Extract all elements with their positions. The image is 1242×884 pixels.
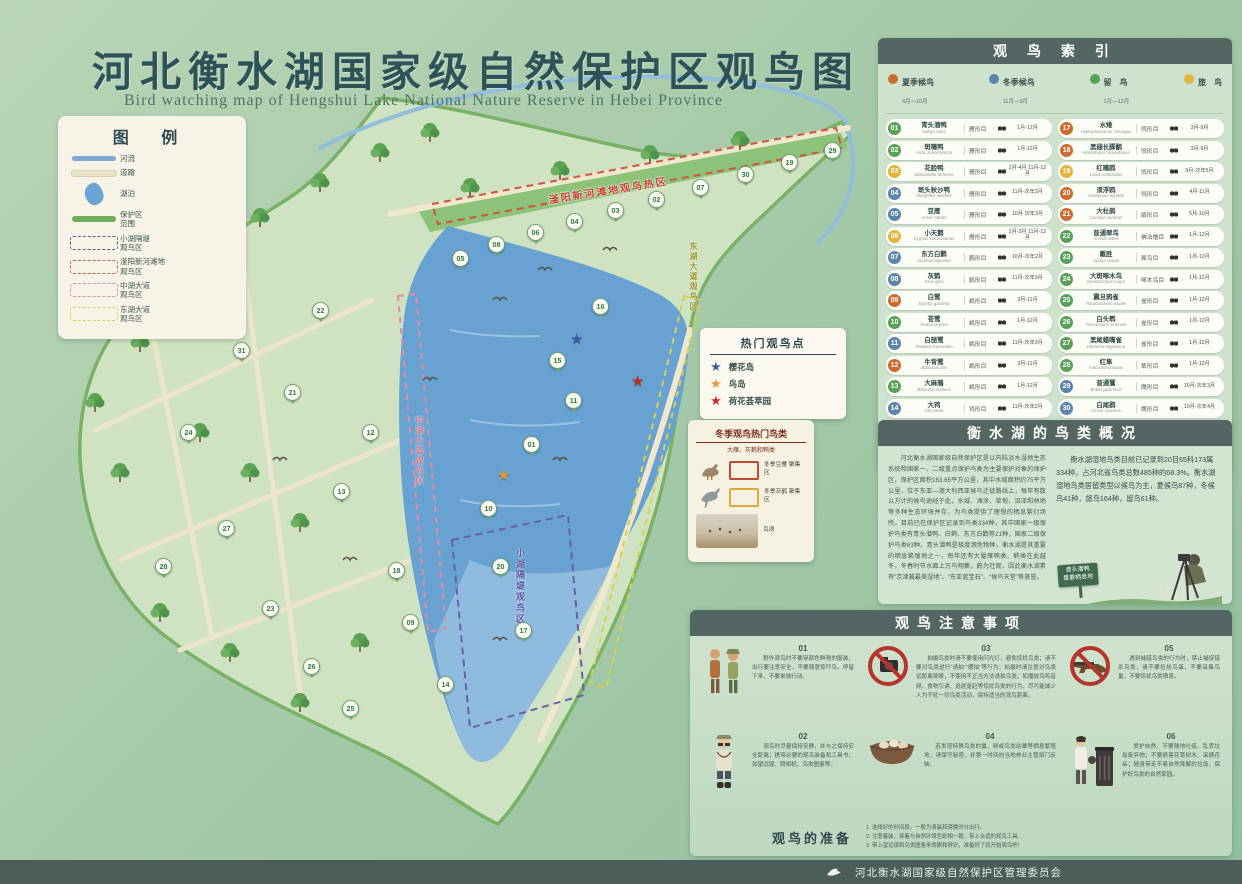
bird-months: 4月-11月 bbox=[1179, 190, 1220, 196]
map-marker: 05 bbox=[452, 250, 469, 267]
bird-row: 29 普通鵟 Buteo japonicus 鹰形目 10月-次年3月 bbox=[1058, 377, 1224, 396]
season-label: 冬季候鸟 bbox=[1003, 78, 1035, 87]
legend-label: 滏阳新河滩地 观鸟区 bbox=[120, 257, 165, 276]
map-marker: 22 bbox=[312, 302, 329, 319]
bird-row: 25 震旦鸦雀 Paradoxornis heudei 雀形目 1月-12月 bbox=[1058, 291, 1224, 310]
bird-number-badge: 07 bbox=[888, 251, 901, 264]
legend-panel: 图 例 河流 道路 湖泊 保护 bbox=[58, 116, 246, 339]
bird-order: 佛法僧目 bbox=[1136, 232, 1169, 241]
binoculars-icon bbox=[997, 190, 1007, 197]
legend-row: 河流 bbox=[68, 154, 236, 163]
bird-order: 雁形目 bbox=[964, 210, 997, 219]
binoculars-icon bbox=[1169, 190, 1179, 197]
bird-number-badge: 08 bbox=[888, 273, 901, 286]
bird-order: 鹈形目 bbox=[964, 296, 997, 305]
bird-name-latin: Mergellus albellus bbox=[904, 194, 964, 198]
bird-row: 24 大斑啄木鸟 Dendrocopos major 啄木鸟目 1月-12月 bbox=[1058, 270, 1224, 289]
bird-number-badge: 22 bbox=[1060, 230, 1073, 243]
map-marker: 03 bbox=[607, 202, 624, 219]
poster: 滏阳新河滩地观鸟热区 小湖隔堤观鸟区 中湖大道观鸟区 东湖大道观鸟区 ★★★ 0… bbox=[0, 0, 1242, 884]
bird-row: 12 牛背鹭 Bubulcus ibis 鹈形目 3月-11月 bbox=[886, 356, 1052, 375]
bird-name-latin: Anas zonorhyncha bbox=[904, 151, 964, 155]
page-title: 河北衡水湖国家级自然保护区观鸟图 bbox=[92, 38, 860, 98]
bird-order: 雁形目 bbox=[964, 167, 997, 176]
map-label-zhonghu: 中湖大道观鸟区 bbox=[414, 416, 425, 486]
binoculars-icon bbox=[997, 362, 1007, 369]
footer-org: 河北衡水湖国家级自然保护区管理委员会 bbox=[855, 865, 1062, 880]
bird-number-badge: 14 bbox=[888, 402, 901, 415]
winter-row-crane: 冬季灰鹤 聚集区 bbox=[696, 486, 806, 508]
binoculars-icon bbox=[997, 319, 1007, 326]
map-marker: 02 bbox=[648, 191, 665, 208]
note-05: 05 遇到捕猎鸟类的行为时，禁止捕捉猎杀鸟类，请不要捡拾鸟蛋，不要采集鸟巢，不要… bbox=[1068, 642, 1220, 730]
prep-title: 观鸟的准备 bbox=[772, 828, 852, 847]
bird-number-badge: 20 bbox=[1060, 187, 1073, 200]
binoculars-icon bbox=[997, 254, 1007, 261]
bird-order: 雁形目 bbox=[964, 124, 997, 133]
note-text: 爱护自然，不要随地吐痰、乱丢垃圾废弃物；不要损害花草树木、采摘花朵；随身带走不易… bbox=[1122, 743, 1220, 780]
bird-row: 05 豆雁 Anser fabalis 雁形目 10月-次年3月 bbox=[886, 205, 1052, 224]
hotspot-star-icon: ★ bbox=[570, 332, 583, 347]
legend-label: 小湖隔堤 观鸟区 bbox=[120, 234, 150, 253]
binoculars-icon bbox=[997, 405, 1007, 412]
bird-list-left: 01 青头潜鸭 Aythya baeri 雁形目 1月-12月 02 bbox=[886, 119, 1052, 461]
bird-months: 1月-12月 bbox=[1007, 126, 1048, 132]
bird-order: 鸻形目 bbox=[1136, 146, 1169, 155]
no-photography-icon bbox=[868, 646, 908, 686]
season-dot-icon bbox=[888, 74, 898, 84]
season-dot-icon bbox=[1090, 74, 1100, 84]
legend-swatch bbox=[82, 181, 105, 207]
bird-months: 9月-次年5月 bbox=[1179, 169, 1220, 175]
bird-row: 17 水雉 Hydrophasianus chirurgus 鸻形目 3月-9月 bbox=[1058, 119, 1224, 138]
note-text: 观鸟时尽量保持安静，并与之保持安全距离；携带必要的观鸟装备和工具书，如望远镜、照… bbox=[752, 743, 854, 771]
bird-row: 19 红嘴鸥 Larus ridibundus 鸻形目 9月-次年5月 bbox=[1058, 162, 1224, 181]
map-marker: 15 bbox=[549, 352, 566, 369]
prep-line: 1. 选择好的时间段，一般为清晨和傍晚时分出行。 bbox=[866, 824, 1023, 833]
bird-name-latin: Ciconia boyciana bbox=[904, 259, 964, 263]
legend-swatch bbox=[72, 216, 116, 222]
legend-swatch bbox=[70, 283, 118, 297]
bird-list-right: 17 水雉 Hydrophasianus chirurgus 鸻形目 3月-9月… bbox=[1058, 119, 1224, 461]
hikers-icon bbox=[704, 646, 744, 702]
map-marker: 23 bbox=[262, 600, 279, 617]
map-marker: 11 bbox=[565, 392, 582, 409]
goose-icon bbox=[698, 460, 722, 480]
bird-order: 鹤形目 bbox=[964, 275, 997, 284]
legend-swatch bbox=[71, 170, 117, 177]
bird-name-latin: Eophona migratoria bbox=[1076, 345, 1136, 349]
map-marker: 14 bbox=[437, 676, 454, 693]
map-marker: 13 bbox=[333, 483, 350, 500]
bird-row: 27 黑尾蜡嘴雀 Eophona migratoria 雀形目 1月-12月 bbox=[1058, 334, 1224, 353]
binoculars-icon bbox=[1169, 297, 1179, 304]
bird-order: 鸻形目 bbox=[1136, 124, 1169, 133]
bird-name-latin: Aythya baeri bbox=[904, 130, 964, 134]
bird-months: 1月-12月 bbox=[1179, 341, 1220, 347]
legend-swatch bbox=[70, 236, 118, 250]
bird-name-latin: Chlidonias hybrida bbox=[1076, 194, 1136, 198]
bird-name-latin: Hydrophasianus chirurgus bbox=[1076, 130, 1136, 134]
bird-order: 鹳形目 bbox=[964, 253, 997, 262]
birdwatcher-icon bbox=[706, 734, 742, 792]
hotspot-label: 樱花岛 bbox=[729, 361, 755, 373]
prep-line: 3. 带上望远镜和鸟类图鉴来观察和辨识，准备好了就开始观鸟吧！ bbox=[866, 842, 1023, 851]
map-marker: 10 bbox=[480, 500, 497, 517]
binoculars-icon bbox=[1169, 168, 1179, 175]
legend-label: 中湖大道 观鸟区 bbox=[120, 281, 150, 300]
binoculars-icon bbox=[1169, 319, 1179, 326]
bird-row: 13 大麻鳽 Botaurus stellaris 鹈形目 1月-12月 bbox=[886, 377, 1052, 396]
bird-months: 10月-次年4月 bbox=[1179, 405, 1220, 411]
bird-months: 3月-11月 bbox=[1007, 362, 1048, 368]
bird-order: 啄木鸟目 bbox=[1136, 275, 1169, 284]
bird-number-badge: 19 bbox=[1060, 165, 1073, 178]
note-number: 03 bbox=[916, 644, 1056, 653]
bird-row: 07 东方白鹳 Ciconia boyciana 鹳形目 10月-次年2月 bbox=[886, 248, 1052, 267]
map-marker: 01 bbox=[523, 436, 540, 453]
bird-months: 11月-次年2月 bbox=[1007, 405, 1048, 411]
winter-title: 冬季观鸟热门鸟类 bbox=[696, 427, 806, 443]
note-number: 02 bbox=[752, 732, 854, 741]
bird-row: 14 大鸨 Otis tarda 鸨形目 11月-次年2月 bbox=[886, 399, 1052, 418]
bird-wave-photo bbox=[696, 514, 758, 548]
bird-order: 鹈形目 bbox=[964, 361, 997, 370]
bird-name-latin: Cygnus columbianus bbox=[904, 237, 964, 241]
bird-months: 11月-次年3月 bbox=[1007, 276, 1048, 282]
bird-months: 11月-次年3月 bbox=[1007, 341, 1048, 347]
hotspot-row: ★ 鸟岛 bbox=[710, 377, 836, 390]
hotspot-star-icon: ★ bbox=[631, 374, 644, 389]
bird-name-latin: Anser fabalis bbox=[904, 216, 964, 220]
prep-section: 观鸟的准备 1. 选择好的时间段，一般为清晨和傍晚时分出行。2. 注意着装，穿着… bbox=[702, 818, 1220, 852]
bird-row: 10 苍鹭 Ardea cinerea 鹈形目 1月-12月 bbox=[886, 313, 1052, 332]
binoculars-icon bbox=[1169, 405, 1179, 412]
notes-panel: 观鸟注意事项 01 野外观鸟时不要穿颜色鲜 bbox=[690, 610, 1232, 856]
note-02: 02 观鸟时尽量保持安静，并与之保持安全距离；携带必要的观鸟装备和工具书，如望远… bbox=[702, 730, 854, 818]
season-months: 1月—12月 bbox=[1104, 99, 1130, 105]
season-item: 夏季候鸟 4月—10月 bbox=[888, 72, 934, 108]
note-03: 03 拍摄鸟类时请不要使用闪光灯，避免惊扰鸟类；请不要对鸟类进行“诱拍”“摆拍”… bbox=[866, 642, 1056, 730]
bird-name-latin: Cuculus canorus bbox=[1076, 216, 1136, 220]
bird-order: 鹈形目 bbox=[964, 382, 997, 391]
map-marker: 06 bbox=[527, 224, 544, 241]
season-item: 留 鸟 1月—12月 bbox=[1090, 72, 1130, 108]
binoculars-icon bbox=[1169, 340, 1179, 347]
bird-order: 鹰形目 bbox=[1136, 382, 1169, 391]
bird-months: 10月-次年2月 bbox=[1007, 255, 1048, 261]
star-icon: ★ bbox=[710, 377, 722, 390]
bird-months: 2月-4月 11月-12月 bbox=[1007, 166, 1048, 178]
hotspot-label: 鸟岛 bbox=[729, 378, 746, 390]
bird-number-badge: 03 bbox=[888, 165, 901, 178]
bird-months: 2月-3月 11月-12月 bbox=[1007, 230, 1048, 242]
bird-order: 雀形目 bbox=[1136, 339, 1169, 348]
legend-label: 湖泊 bbox=[120, 189, 135, 198]
map-marker: 12 bbox=[362, 424, 379, 441]
bird-name-latin: Upupa epops bbox=[1076, 259, 1136, 263]
bird-order: 雁形目 bbox=[964, 232, 997, 241]
map-marker: 26 bbox=[303, 658, 320, 675]
map-label-xiaohu: 小湖隔堤观鸟区 bbox=[514, 548, 527, 625]
bird-order: 雁形目 bbox=[964, 146, 997, 155]
bird-row: 18 黑翅长脚鹬 Himantopus himantopus 鸻形目 3月-9月 bbox=[1058, 141, 1224, 160]
season-legend: 夏季候鸟 4月—10月 冬季候鸟 11月—3月 bbox=[886, 70, 1224, 114]
bird-name-latin: Dendrocopos major bbox=[1076, 280, 1136, 284]
bird-index-panel: 观 鸟 索 引 夏季候鸟 4月—10月 冬季候 bbox=[878, 38, 1232, 471]
prep-lines: 1. 选择好的时间段，一般为清晨和傍晚时分出行。2. 注意着装，穿着与自然环境色… bbox=[866, 824, 1023, 852]
bird-number-badge: 27 bbox=[1060, 337, 1073, 350]
legend-row: 小湖隔堤 观鸟区 bbox=[68, 234, 236, 253]
map-marker: 29 bbox=[824, 142, 841, 159]
winter-row-birdwave: 鸟浪 bbox=[696, 514, 806, 548]
overview-title: 衡水湖的鸟类概况 bbox=[878, 420, 1232, 446]
legend-row: 中湖大道 观鸟区 bbox=[68, 281, 236, 300]
bird-months: 3月-9月 bbox=[1179, 126, 1220, 132]
crane-icon bbox=[698, 486, 722, 508]
binoculars-icon bbox=[997, 297, 1007, 304]
legend-label: 东湖大道 观鸟区 bbox=[120, 305, 150, 324]
map-marker: 08 bbox=[488, 236, 505, 253]
bird-months: 5月-10月 bbox=[1179, 212, 1220, 218]
bird-number-badge: 04 bbox=[888, 187, 901, 200]
bird-name-latin: Egretta garzetta bbox=[904, 302, 964, 306]
note-04: 04 若发现特殊鸟类的巢、卵或鸟类幼雏等栖息繁殖地，请保守秘密，并第一时间向当地… bbox=[866, 730, 1056, 818]
bird-months: 1月-12月 bbox=[1007, 384, 1048, 390]
bird-row: 04 斑头秋沙鸭 Mergellus albellus 雁形目 11月-次年3月 bbox=[886, 184, 1052, 203]
bird-name-latin: Platalea leucorodia bbox=[904, 345, 964, 349]
legend-row: 滏阳新河滩地 观鸟区 bbox=[68, 257, 236, 276]
bird-order: 鸻形目 bbox=[1136, 189, 1169, 198]
red-area-swatch bbox=[729, 461, 759, 480]
map-marker: 07 bbox=[692, 179, 709, 196]
note-number: 05 bbox=[1118, 644, 1220, 653]
bird-row: 22 普通翠鸟 Alcedo atthis 佛法僧目 1月-12月 bbox=[1058, 227, 1224, 246]
legend-swatch bbox=[72, 156, 116, 161]
bird-months: 1月-12月 bbox=[1007, 319, 1048, 325]
bird-number-badge: 25 bbox=[1060, 294, 1073, 307]
bird-row: 28 红隼 Falco tinnunculus 隼形目 1月-12月 bbox=[1058, 356, 1224, 375]
season-label: 夏季候鸟 bbox=[902, 78, 934, 87]
map-marker: 09 bbox=[402, 614, 419, 631]
bird-months: 3月-11月 bbox=[1007, 298, 1048, 304]
hotspots-list: ★ 樱花岛 ★ 鸟岛 ★ 荷花荟萃园 bbox=[710, 360, 836, 407]
season-dot-icon bbox=[1184, 74, 1194, 84]
map-marker: 18 bbox=[388, 562, 405, 579]
bird-name-latin: Buteo japonicus bbox=[1076, 388, 1136, 392]
note-number: 06 bbox=[1122, 732, 1220, 741]
binoculars-icon bbox=[997, 383, 1007, 390]
bird-name-latin: Ardea cinerea bbox=[904, 323, 964, 327]
season-months: 4月—10月 bbox=[902, 99, 928, 105]
bird-months: 3月-9月 bbox=[1179, 147, 1220, 153]
binoculars-icon bbox=[1169, 276, 1179, 283]
bird-name-latin: Larus ridibundus bbox=[1076, 173, 1136, 177]
bird-number-badge: 12 bbox=[888, 359, 901, 372]
hotspot-star-icon: ★ bbox=[497, 468, 510, 483]
bird-row: 01 青头潜鸭 Aythya baeri 雁形目 1月-12月 bbox=[886, 119, 1052, 138]
star-icon: ★ bbox=[710, 360, 722, 373]
bird-name-latin: Falco tinnunculus bbox=[1076, 366, 1136, 370]
bird-number-badge: 28 bbox=[1060, 359, 1073, 372]
season-label: 留 鸟 bbox=[1104, 78, 1128, 87]
overview-panel: 衡水湖的鸟类概况 河北衡水湖国家级自然保护区是以内陆淡水湿地生态系统和国家一、二… bbox=[878, 420, 1232, 604]
bird-number-badge: 17 bbox=[1060, 122, 1073, 135]
yellow-area-swatch bbox=[729, 488, 759, 507]
bird-name-latin: Sibirionetta formosa bbox=[904, 173, 964, 177]
note-01: 01 野外观鸟时不要穿颜色鲜艳的服装，出行要注意安全，不要随意惊吓鸟，停留下来，… bbox=[702, 642, 854, 730]
map-marker: 24 bbox=[180, 424, 197, 441]
bird-order: 鹰形目 bbox=[1136, 404, 1169, 413]
map-marker: 28 bbox=[155, 558, 172, 575]
season-item: 旅 鸟 bbox=[1184, 72, 1222, 90]
bird-name-latin: Botaurus stellaris bbox=[904, 388, 964, 392]
map-marker: 30 bbox=[737, 166, 754, 183]
bird-order: 隼形目 bbox=[1136, 361, 1169, 370]
hotspots-title: 热门观鸟点 bbox=[710, 335, 836, 355]
season-months: 11月—3月 bbox=[1003, 99, 1028, 105]
binoculars-icon bbox=[997, 168, 1007, 175]
legend-row: 东湖大道 观鸟区 bbox=[68, 305, 236, 324]
winter-row-goose: 冬季豆雁 聚集区 bbox=[696, 460, 806, 480]
binoculars-icon bbox=[997, 233, 1007, 240]
bird-months: 1月-12月 bbox=[1179, 362, 1220, 368]
habitat-sign: 青头潜鸭 重要栖息地 bbox=[1057, 563, 1098, 587]
binoculars-icon bbox=[1169, 125, 1179, 132]
bird-name-latin: Otis tarda bbox=[904, 409, 964, 413]
bird-number-badge: 18 bbox=[1060, 144, 1073, 157]
reserve-logo-icon bbox=[825, 865, 847, 879]
winter-label: 冬季豆雁 聚集区 bbox=[764, 462, 806, 477]
bird-row: 20 须浮鸥 Chlidonias hybrida 鸻形目 4月-11月 bbox=[1058, 184, 1224, 203]
bird-row: 26 白头鹎 Pycnonotus sinensis 雀形目 1月-12月 bbox=[1058, 313, 1224, 332]
legend-items: 河流 道路 湖泊 保护区 范围 bbox=[68, 154, 236, 324]
bird-name-latin: Alcedo atthis bbox=[1076, 237, 1136, 241]
bird-row: 08 灰鹤 Grus grus 鹤形目 11月-次年3月 bbox=[886, 270, 1052, 289]
bird-months: 1月-12月 bbox=[1179, 233, 1220, 239]
footer-bar: 河北衡水湖国家级自然保护区管理委员会 bbox=[0, 860, 1242, 884]
winter-subtitle: 大雁、灰鹤和鸭类 bbox=[696, 445, 806, 454]
bird-months: 1月-12月 bbox=[1179, 319, 1220, 325]
hotspot-label: 荷花荟萃园 bbox=[729, 395, 772, 407]
overview-stats: 衡水湖湿地鸟类目前已记录到20目65科173属334种，占河北省鸟类总数485种… bbox=[1056, 454, 1222, 506]
bird-number-badge: 01 bbox=[888, 122, 901, 135]
bird-row: 11 白琵鹭 Platalea leucorodia 鹈形目 11月-次年3月 bbox=[886, 334, 1052, 353]
notes-title: 观鸟注意事项 bbox=[690, 610, 1232, 636]
bird-name-latin: Pycnonotus sinensis bbox=[1076, 323, 1136, 327]
bird-number-badge: 29 bbox=[1060, 380, 1073, 393]
binoculars-icon bbox=[997, 211, 1007, 218]
bird-order: 鹃形目 bbox=[1136, 210, 1169, 219]
bird-row: 02 斑嘴鸭 Anas zonorhyncha 雁形目 1月-12月 bbox=[886, 141, 1052, 160]
bird-row: 23 戴胜 Upupa epops 犀鸟目 1月-12月 bbox=[1058, 248, 1224, 267]
note-text: 遇到捕猎鸟类的行为时，禁止捕捉猎杀鸟类，请不要捡拾鸟蛋，不要采集鸟巢，不要惊扰鸟… bbox=[1118, 655, 1220, 683]
bird-order: 鹈形目 bbox=[964, 339, 997, 348]
legend-row: 保护区 范围 bbox=[68, 210, 236, 229]
bird-row: 21 大杜鹃 Cuculus canorus 鹃形目 5月-10月 bbox=[1058, 205, 1224, 224]
prep-line: 2. 注意着装，穿着与自然环境色彩相一致，带上合适的观鸟工具。 bbox=[866, 833, 1023, 842]
bird-row: 09 白鹭 Egretta garzetta 鹈形目 3月-11月 bbox=[886, 291, 1052, 310]
bird-months: 10月-次年3月 bbox=[1007, 212, 1048, 218]
bird-row: 30 白尾鹞 Circus cyaneus 鹰形目 10月-次年4月 bbox=[1058, 399, 1224, 418]
binoculars-icon bbox=[997, 147, 1007, 154]
map-label-donghu: 东湖大道观鸟区 bbox=[688, 242, 699, 312]
binoculars-icon bbox=[1169, 211, 1179, 218]
bird-name-latin: Himantopus himantopus bbox=[1076, 151, 1136, 155]
map-marker: 16 bbox=[592, 298, 609, 315]
bird-order: 雁形目 bbox=[964, 189, 997, 198]
map-marker: 27 bbox=[218, 520, 235, 537]
season-dot-icon bbox=[989, 74, 999, 84]
note-number: 04 bbox=[924, 732, 1056, 741]
bird-months: 1月-12月 bbox=[1007, 147, 1048, 153]
overview-text: 河北衡水湖国家级自然保护区是以内陆淡水湿地生态系统和国家一、二级重点保护鸟类为主… bbox=[888, 454, 1046, 604]
bird-number-badge: 23 bbox=[1060, 251, 1073, 264]
legend-swatch bbox=[70, 307, 118, 321]
season-item: 冬季候鸟 11月—3月 bbox=[989, 72, 1035, 108]
map-marker: 19 bbox=[781, 154, 798, 171]
bird-order: 鸨形目 bbox=[964, 404, 997, 413]
map-marker: 04 bbox=[566, 213, 583, 230]
map-marker: 25 bbox=[342, 700, 359, 717]
legend-label: 河流 bbox=[120, 154, 135, 163]
legend-row: 道路 bbox=[68, 168, 236, 177]
bird-name-latin: Grus grus bbox=[904, 280, 964, 284]
bird-number-badge: 11 bbox=[888, 337, 901, 350]
bird-months: 1月-12月 bbox=[1179, 298, 1220, 304]
note-text: 拍摄鸟类时请不要使用闪光灯，避免惊扰鸟类；请不要对鸟类进行“诱拍”“摆拍”等行为… bbox=[916, 655, 1056, 701]
page-subtitle: Bird watching map of Hengshui Lake Natio… bbox=[124, 92, 723, 110]
map-marker: 31 bbox=[233, 342, 250, 359]
bird-months: 11月-次年3月 bbox=[1007, 190, 1048, 196]
bird-order: 鸻形目 bbox=[1136, 167, 1169, 176]
note-06: 06 爱护自然，不要随地吐痰、乱丢垃圾废弃物；不要损害花草树木、采摘花朵；随身带… bbox=[1068, 730, 1220, 818]
season-label: 旅 鸟 bbox=[1198, 78, 1222, 87]
bird-name-latin: Paradoxornis heudei bbox=[1076, 302, 1136, 306]
binoculars-icon bbox=[1169, 233, 1179, 240]
bird-order: 雀形目 bbox=[1136, 318, 1169, 327]
legend-label: 保护区 范围 bbox=[120, 210, 143, 229]
legend-row: 湖泊 bbox=[68, 183, 236, 205]
bird-months: 1月-12月 bbox=[1179, 276, 1220, 282]
bird-row: 03 花脸鸭 Sibirionetta formosa 雁形目 2月-4月 11… bbox=[886, 162, 1052, 181]
winter-label: 鸟浪 bbox=[763, 527, 775, 535]
note-text: 野外观鸟时不要穿颜色鲜艳的服装，出行要注意安全，不要随意惊吓鸟，停留下来，不要单… bbox=[752, 655, 854, 683]
map-marker: 20 bbox=[492, 558, 509, 575]
bird-number-badge: 21 bbox=[1060, 208, 1073, 221]
bird-number-badge: 13 bbox=[888, 380, 901, 393]
map-marker: 17 bbox=[515, 622, 532, 639]
binoculars-icon bbox=[997, 125, 1007, 132]
bird-order: 雀形目 bbox=[1136, 296, 1169, 305]
legend-swatch bbox=[70, 260, 118, 274]
map-marker: 21 bbox=[284, 384, 301, 401]
binoculars-icon bbox=[1169, 147, 1179, 154]
hotspot-row: ★ 荷花荟萃园 bbox=[710, 394, 836, 407]
bird-number-badge: 26 bbox=[1060, 316, 1073, 329]
binoculars-icon bbox=[1169, 254, 1179, 261]
bird-number-badge: 05 bbox=[888, 208, 901, 221]
winter-label: 冬季灰鹤 聚集区 bbox=[764, 489, 806, 504]
bird-order: 鹈形目 bbox=[964, 318, 997, 327]
litter-disposal-icon bbox=[1068, 734, 1116, 792]
bird-row: 06 小天鹅 Cygnus columbianus 雁形目 2月-3月 11月-… bbox=[886, 227, 1052, 246]
bird-number-badge: 10 bbox=[888, 316, 901, 329]
bird-index-title: 观 鸟 索 引 bbox=[878, 38, 1232, 64]
nest-icon bbox=[866, 734, 918, 768]
binoculars-icon bbox=[997, 340, 1007, 347]
legend-label: 道路 bbox=[120, 168, 135, 177]
